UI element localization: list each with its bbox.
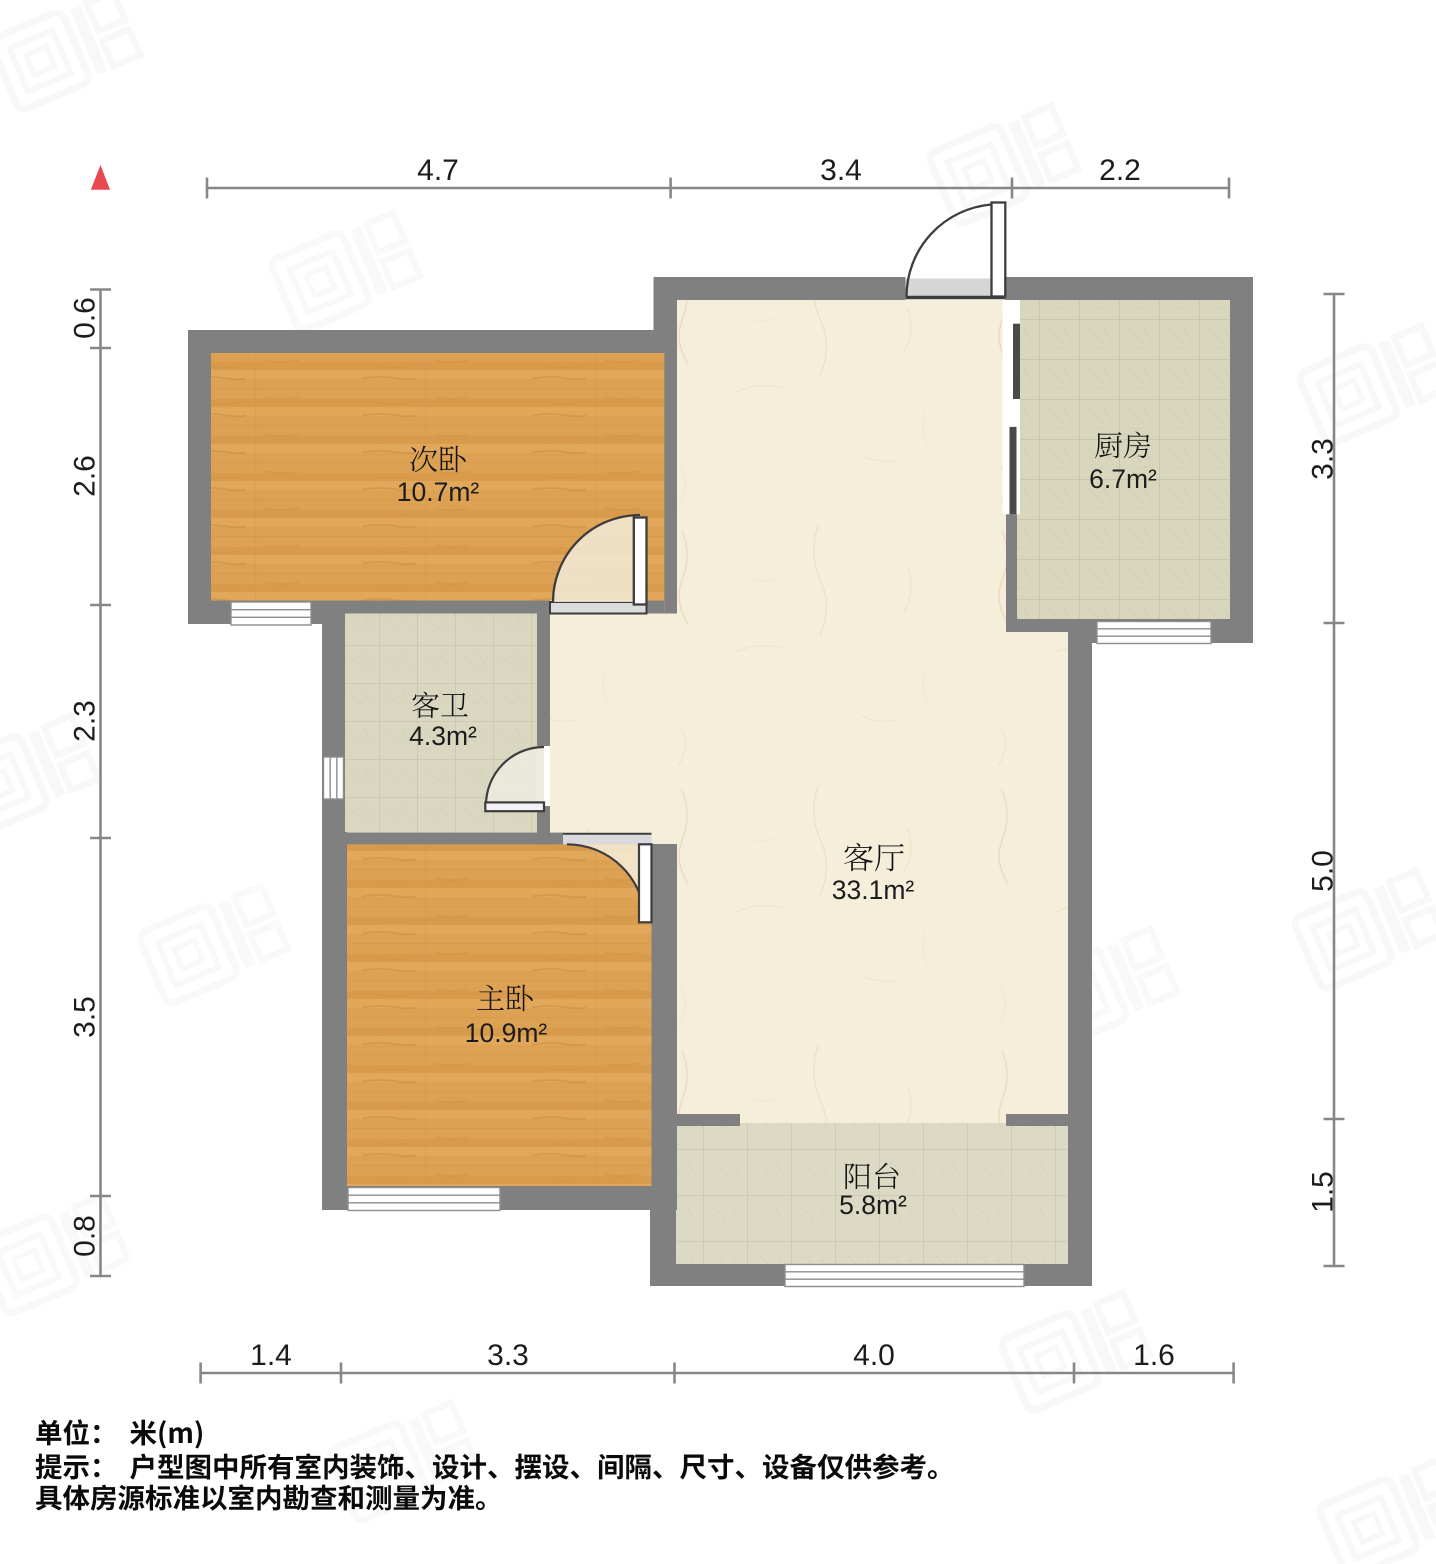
svg-text:2.2: 2.2 (1099, 154, 1141, 187)
svg-text:0.6: 0.6 (69, 297, 102, 339)
svg-text:3.5: 3.5 (69, 996, 102, 1038)
svg-text:4.7: 4.7 (417, 154, 459, 187)
svg-text:5.0: 5.0 (1307, 850, 1340, 892)
svg-text:2.6: 2.6 (69, 455, 102, 497)
svg-text:10.9m²: 10.9m² (465, 1018, 548, 1048)
svg-text:2.3: 2.3 (69, 700, 102, 742)
svg-text:6.7m²: 6.7m² (1089, 464, 1157, 494)
svg-text:5.8m²: 5.8m² (839, 1190, 907, 1220)
svg-text:3.4: 3.4 (820, 154, 862, 187)
svg-text:1.6: 1.6 (1133, 1339, 1175, 1372)
svg-text:10.7m²: 10.7m² (397, 477, 480, 507)
svg-text:1.4: 1.4 (250, 1339, 292, 1372)
svg-text:4.0: 4.0 (853, 1339, 895, 1372)
svg-text:4.3m²: 4.3m² (409, 721, 477, 751)
svg-text:33.1m²: 33.1m² (832, 875, 915, 905)
svg-text:1.5: 1.5 (1307, 1171, 1340, 1213)
svg-text:3.3: 3.3 (487, 1339, 529, 1372)
svg-text:3.3: 3.3 (1307, 438, 1340, 480)
svg-text:0.8: 0.8 (69, 1215, 102, 1257)
